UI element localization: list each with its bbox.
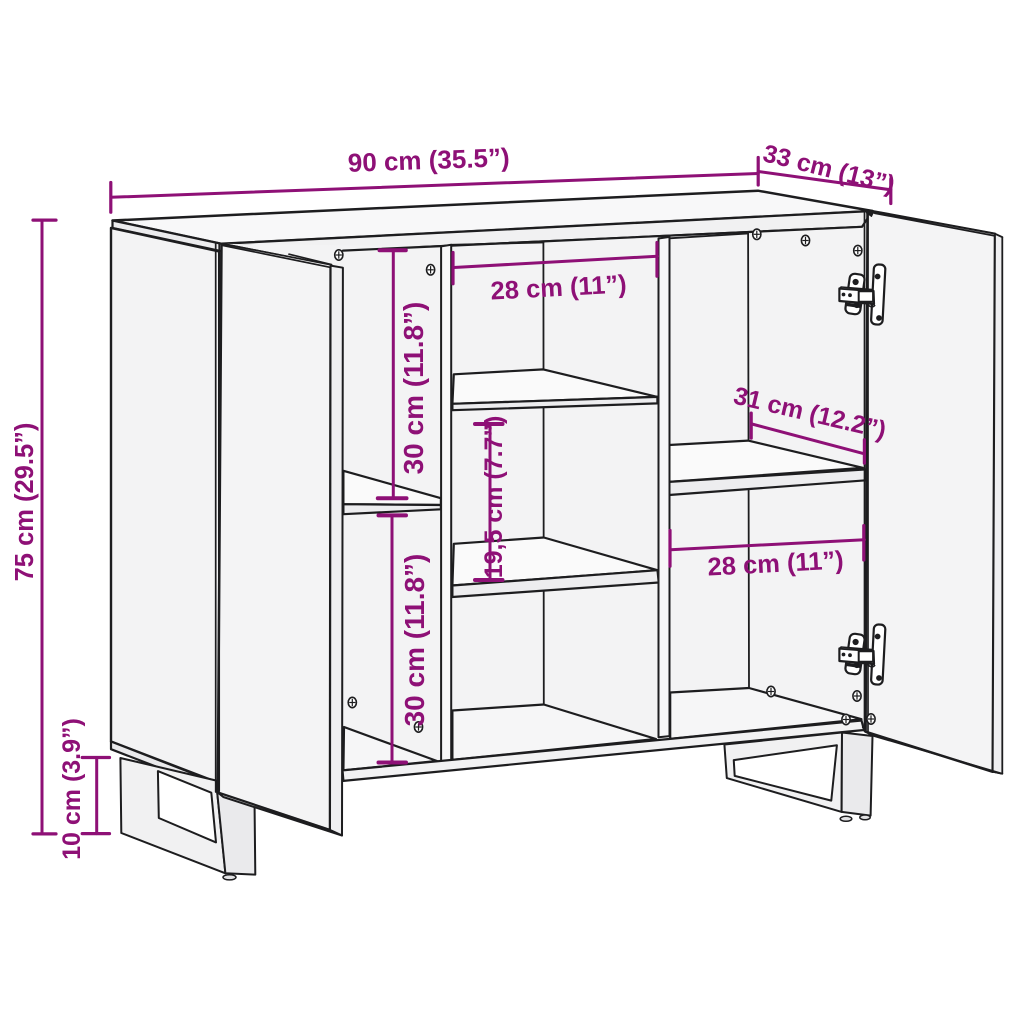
svg-text:30 cm (11.8”): 30 cm (11.8”) (399, 554, 430, 727)
svg-text:19,5 cm (7.7”): 19,5 cm (7.7”) (480, 416, 508, 579)
svg-text:10 cm (3.9”): 10 cm (3.9”) (58, 718, 86, 860)
svg-text:75 cm (29.5”): 75 cm (29.5”) (11, 423, 39, 582)
svg-text:90 cm (35.5”): 90 cm (35.5”) (347, 142, 510, 178)
svg-text:30 cm (11.8”): 30 cm (11.8”) (398, 302, 429, 475)
